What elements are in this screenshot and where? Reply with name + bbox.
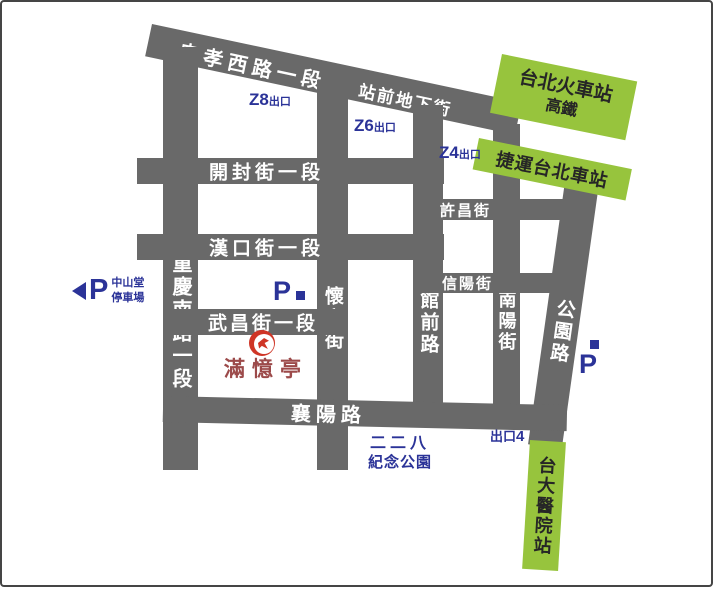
exit-z6-code: Z6	[354, 116, 374, 135]
exit-4-num: 4	[516, 428, 524, 445]
left-arrow-icon	[72, 282, 86, 300]
exit-z6-label: Z6出口	[354, 116, 396, 136]
park-228-line2: 紀念公園	[350, 454, 450, 473]
road-kaifeng: 開封街一段	[137, 158, 444, 184]
street-label-xiangyang: 襄陽路	[291, 397, 367, 428]
street-label-guanqian: 館前路	[415, 290, 442, 356]
exit-z8-label: Z8出口	[249, 90, 291, 110]
street-label-xinyang: 信陽街	[442, 273, 493, 294]
exit-4-prefix: 出口	[490, 429, 516, 444]
parking-zhongshan-line2: 停車場	[111, 291, 144, 305]
street-label-nanyang: 南陽街	[494, 290, 520, 353]
exit-z4-code: Z4	[439, 143, 459, 162]
road-xinyang: 信陽街	[413, 273, 580, 293]
station-label-ntuh: 台大醫院站	[528, 455, 560, 556]
exit-4-label: 出口4	[490, 426, 524, 446]
exit-z6-suffix: 出口	[374, 122, 396, 134]
parking-icon: P	[579, 351, 597, 378]
parking-square-icon	[296, 291, 305, 300]
parking-zhongshan-line1: 中山堂	[111, 276, 144, 290]
parking-icon: P	[89, 276, 108, 305]
exit-z4-label: Z4出口	[439, 143, 481, 163]
street-label-zhongxiao: 忠孝西路一段	[176, 36, 329, 96]
exit-z8-suffix: 出口	[269, 96, 291, 108]
map-frame: 忠孝西路一段 站前地下街 重慶南路一段 懷寧街 館前路 南陽街 公園路 開封街一…	[0, 0, 713, 587]
street-label-xuchang: 許昌街	[440, 199, 491, 220]
exit-z8-code: Z8	[249, 90, 269, 109]
park-228-line1: 二二八	[350, 434, 450, 454]
street-label-hankou: 漢口街一段	[209, 234, 324, 261]
parking-zhongshan-hall: P 中山堂 停車場	[72, 276, 144, 305]
parking-square-icon	[590, 340, 599, 349]
street-label-kaifeng: 開封街一段	[209, 158, 324, 185]
street-label-gongyuan: 公園路	[543, 297, 579, 366]
parking-huaining: P	[273, 278, 305, 305]
parking-gongyuan: P	[579, 340, 599, 378]
road-xuchang: 許昌街	[413, 199, 590, 220]
road-hankou: 漢口街一段	[137, 234, 444, 260]
parking-icon: P	[273, 278, 291, 305]
park-228-label: 二二八 紀念公園	[350, 434, 450, 473]
restaurant-name: 滿憶亭	[224, 353, 308, 383]
exit-z4-suffix: 出口	[459, 149, 481, 161]
station-ntu-hospital: 台大醫院站	[522, 440, 566, 571]
